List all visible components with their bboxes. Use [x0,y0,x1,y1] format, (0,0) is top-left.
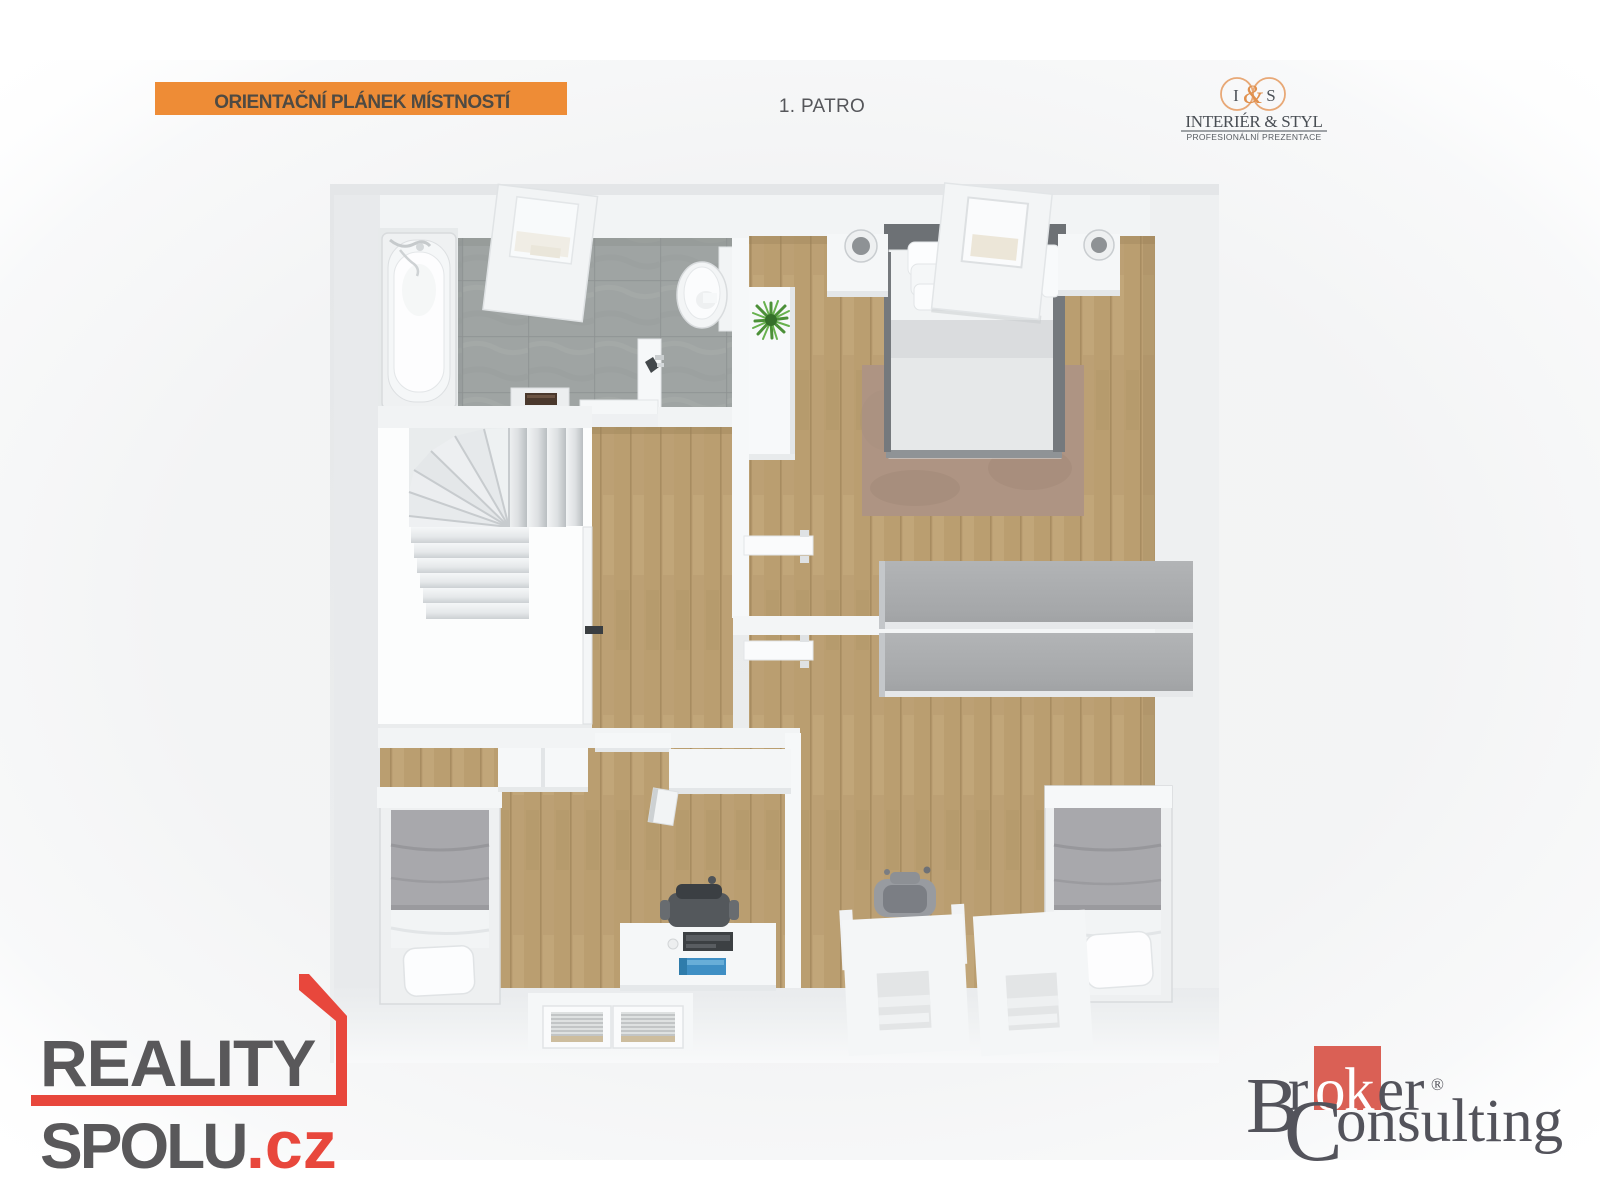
svg-text:1. PATRO: 1. PATRO [779,96,865,117]
svg-text:&: & [1243,80,1264,109]
svg-text:PROFESIONÁLNÍ PREZENTACE: PROFESIONÁLNÍ PREZENTACE [1186,132,1321,142]
svg-text:C: C [1284,1083,1343,1180]
svg-text:REALITY: REALITY [40,1026,315,1100]
svg-text:I: I [1233,86,1239,105]
svg-text:S: S [1266,86,1275,105]
svg-text:INTERIÉR & STYL: INTERIÉR & STYL [1185,112,1322,131]
svg-text:.cz: .cz [246,1107,337,1183]
svg-text:SPOLU: SPOLU [40,1110,245,1182]
svg-text:ORIENTAČNÍ PLÁNEK MÍSTNOSTÍ: ORIENTAČNÍ PLÁNEK MÍSTNOSTÍ [214,91,511,113]
svg-text:onsulting: onsulting [1336,1088,1563,1155]
